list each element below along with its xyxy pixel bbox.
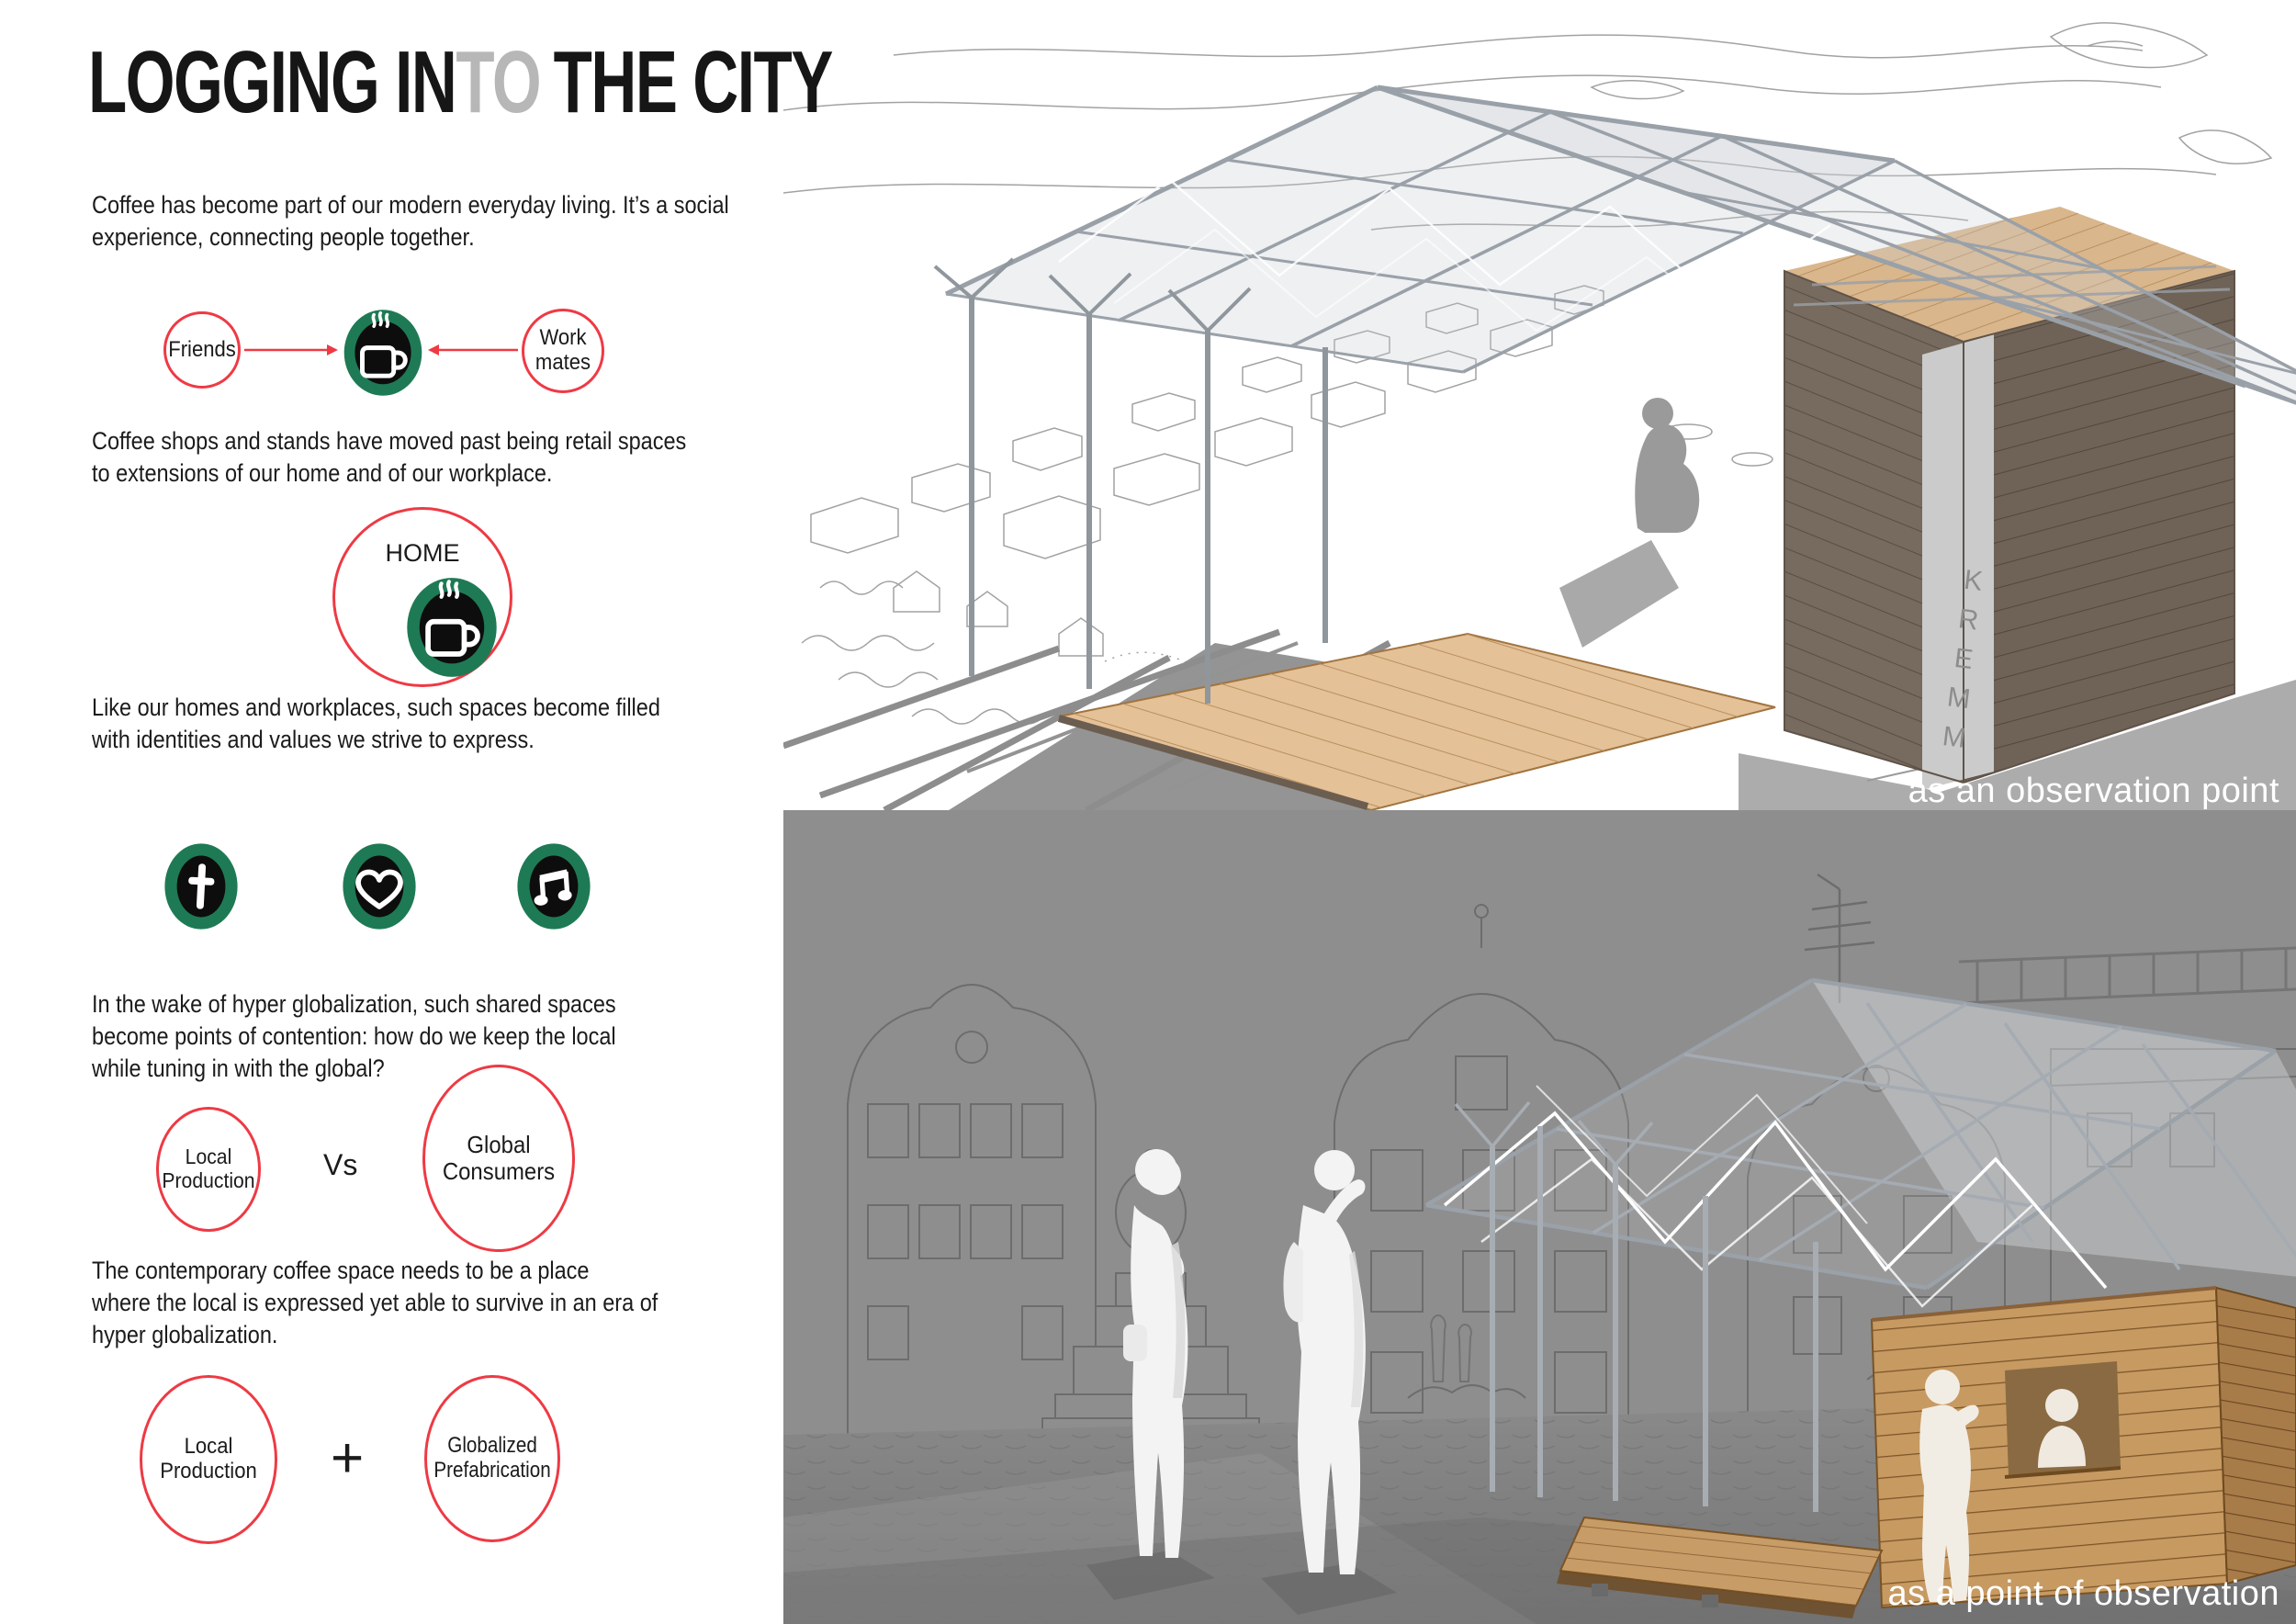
home-label: HOME [386,539,460,568]
title-part-2: TO [456,33,540,131]
global-consumers-circle: Global Consumers [422,1065,575,1252]
local-production-label: Local Production [162,1145,254,1193]
plus-sign: + [331,1426,364,1491]
intro-paragraph-2: Coffee shops and stands have moved past … [92,425,775,490]
global-consumers-label: Global Consumers [431,1132,566,1185]
friends-circle: Friends [163,311,241,389]
page-title: LOGGING INTOTHE CITY [88,37,832,130]
music-note-icon [513,836,594,937]
cross-icon [161,836,242,937]
top-render-caption: as an observation point [1818,772,2279,811]
title-part-3: THE CITY [554,33,832,131]
globalized-prefabrication-circle: Globalized Prefabrication [424,1375,560,1542]
workmates-circle: Work mates [522,309,604,393]
intro-paragraph-1: Coffee has become part of our modern eve… [92,189,824,254]
coffee-cup-icon [404,575,500,680]
top-render-illustration [783,0,2296,810]
friends-label: Friends [168,338,236,363]
heart-icon [339,836,420,937]
versus-label: Vs [323,1148,357,1182]
kiosk-box [1872,1288,2296,1607]
bottom-render [783,810,2296,1624]
local-production-circle-2: Local Production [140,1375,277,1544]
arrow-left-icon [428,344,518,356]
bottom-render-caption: as a point of observation [1800,1574,2279,1614]
intro-paragraph-3: Like our homes and workplaces, such spac… [92,692,745,756]
coffee-cup-icon [342,307,424,399]
local-production-circle: Local Production [156,1107,261,1232]
local-production-label-2: Local Production [148,1435,269,1484]
globalization-paragraph: In the wake of hyper globalization, such… [92,988,694,1085]
presentation-board: LOGGING INTOTHE CITY Coffee has become p… [0,0,2296,1624]
workmates-label: Work mates [527,326,598,376]
globalized-prefabrication-label: Globalized Prefabrication [433,1434,550,1483]
conclusion-paragraph: The contemporary coffee space needs to b… [92,1255,742,1351]
arrow-right-icon [244,344,338,356]
title-part-1: LOGGING IN [88,33,456,131]
